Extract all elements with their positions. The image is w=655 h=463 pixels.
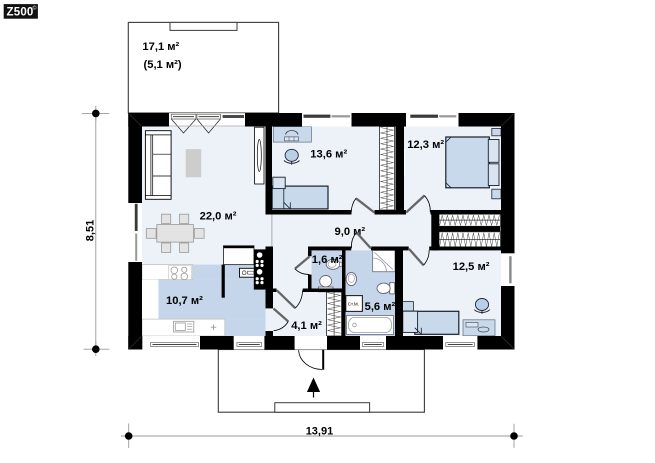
svg-text:4,1 м²: 4,1 м²: [291, 320, 322, 332]
svg-text:©: ©: [33, 5, 37, 12]
svg-text:22,0 м²: 22,0 м²: [200, 211, 237, 223]
svg-text:Ст.М.: Ст.М.: [348, 302, 359, 307]
svg-text:(5,1 м²): (5,1 м²): [144, 59, 182, 71]
svg-text:Z500: Z500: [7, 7, 34, 19]
svg-text:13,6 м²: 13,6 м²: [310, 148, 347, 160]
svg-text:10,7 м²: 10,7 м²: [166, 295, 203, 307]
svg-text:8,51: 8,51: [85, 220, 97, 241]
svg-text:13,91: 13,91: [306, 425, 334, 437]
svg-text:17,1 м²: 17,1 м²: [142, 41, 179, 53]
svg-text:1,6 м²: 1,6 м²: [312, 254, 343, 266]
svg-text:5,6 м²: 5,6 м²: [365, 301, 396, 313]
svg-text:12,5 м²: 12,5 м²: [453, 261, 490, 273]
svg-text:12,3 м²: 12,3 м²: [407, 139, 444, 151]
